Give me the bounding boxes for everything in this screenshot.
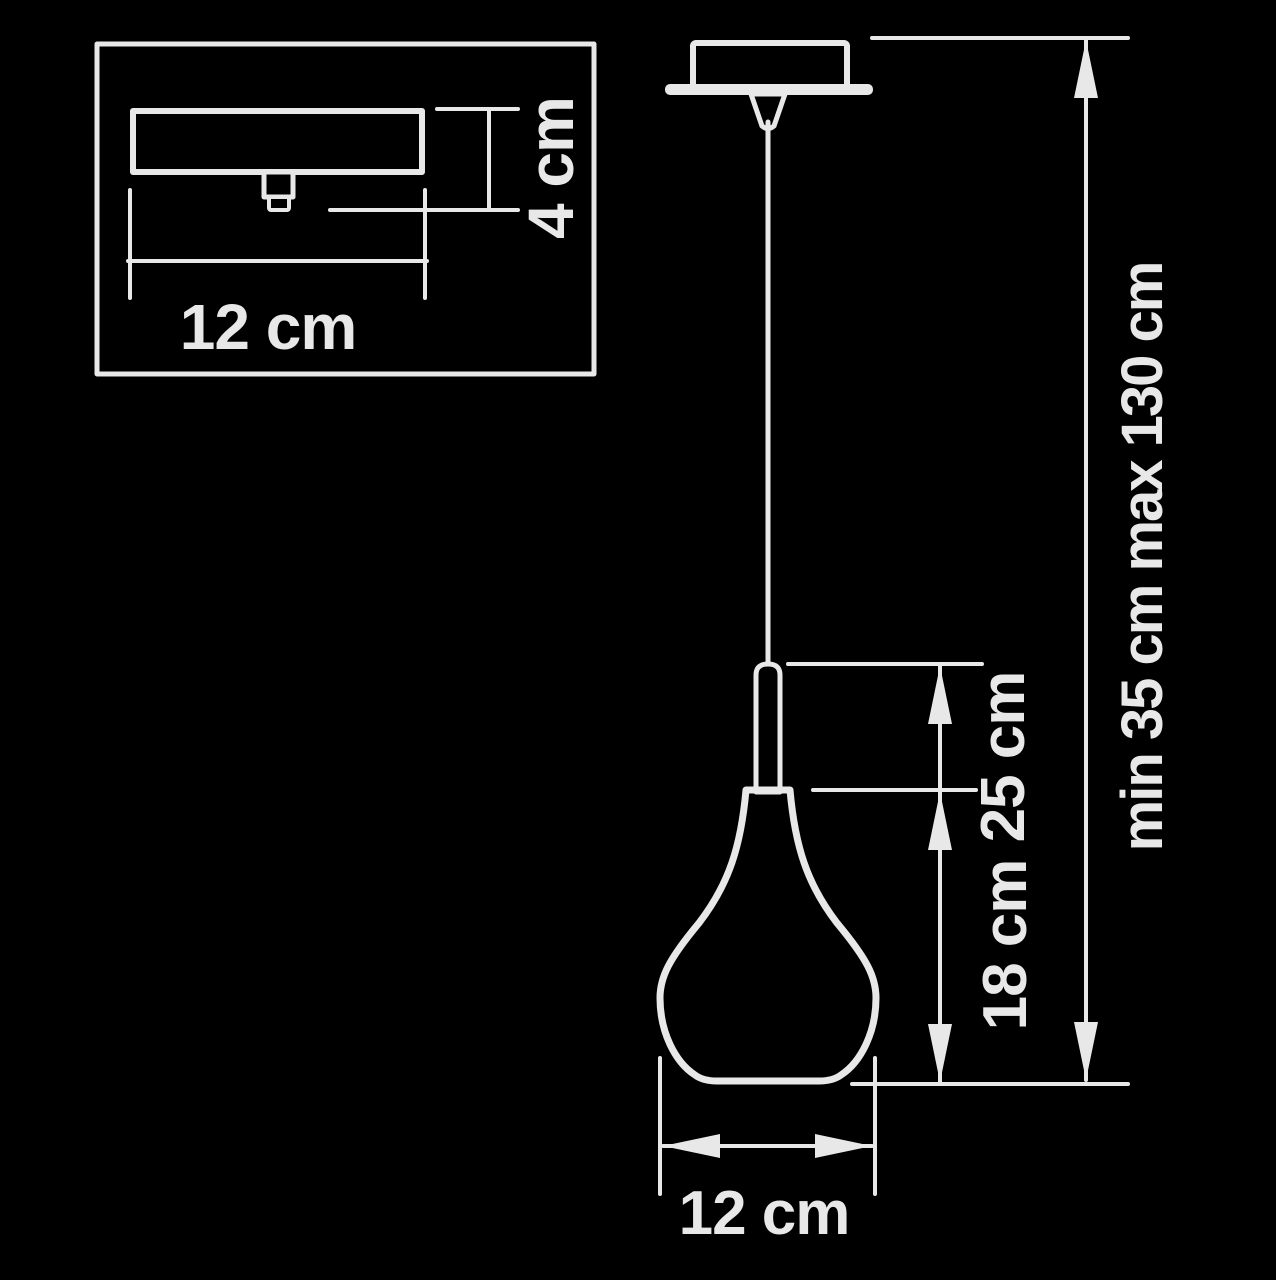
arrow-up-25cm (928, 666, 952, 724)
canopy-box (693, 43, 847, 88)
shade-width-arrow-right (815, 1134, 872, 1158)
inset-canopy-connector-lower (269, 197, 289, 210)
technical-drawing (0, 0, 1276, 1280)
stem-tube (756, 664, 780, 792)
shade-diameter-label: 12 cm (679, 1183, 850, 1245)
arrow-up-18cm (928, 792, 952, 850)
shade-height-label: 18 cm (975, 860, 1037, 1031)
arrow-down-suspension (1074, 1022, 1098, 1080)
inset-canopy-height-label: 4 cm (519, 97, 583, 239)
inset-canopy-connector-upper (264, 172, 293, 197)
diagram-canvas: 12 cm 4 cm 25 cm 18 cm min 35 cm max 130… (0, 0, 1276, 1280)
shade-outline (660, 790, 876, 1081)
inset-canopy-width-label: 12 cm (180, 295, 356, 359)
shade-width-arrow-left (663, 1134, 720, 1158)
inset-canopy-body (133, 111, 422, 172)
suspension-range-label: min 35 cm max 130 cm (1114, 263, 1172, 852)
pendant-height-label: 25 cm (973, 672, 1035, 843)
arrow-up-suspension (1074, 40, 1098, 98)
arrow-down-shared (928, 1024, 952, 1082)
